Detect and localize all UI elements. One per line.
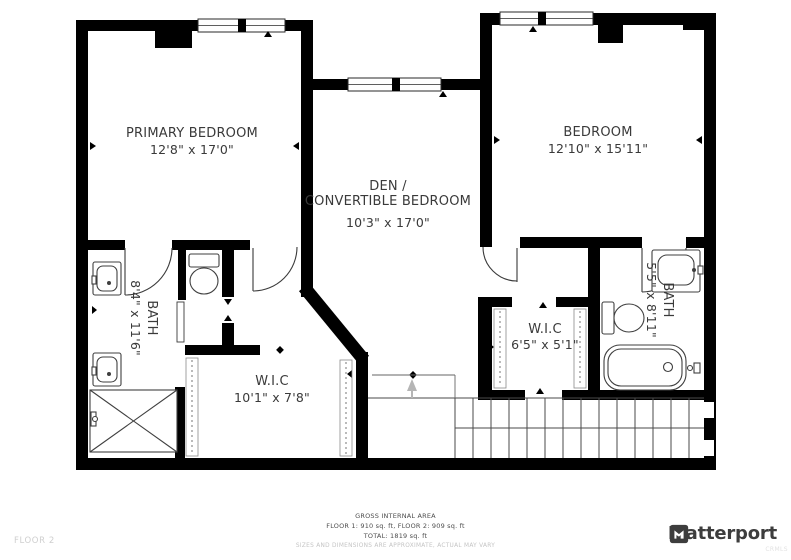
den-dims: 10'3" x 17'0" [346, 215, 430, 230]
den-label-line2: CONVERTIBLE BEDROOM [305, 194, 471, 209]
stair-direction-arrow [407, 379, 417, 398]
sink [92, 353, 121, 386]
matterport-logo: Matterport [668, 523, 777, 544]
watermark: CRMLS [765, 546, 788, 553]
bedroom-label: BEDROOM [563, 125, 632, 140]
bath-left-label: BATH [144, 300, 159, 335]
shower [90, 390, 177, 452]
windows [198, 12, 593, 91]
matterport-m-icon [668, 523, 690, 545]
bath-right-label: BATH [660, 282, 675, 317]
gross-area-title: GROSS INTERNAL AREA [0, 512, 791, 522]
sink [92, 262, 121, 295]
bathtub [604, 345, 700, 390]
door-primary-bedroom [253, 247, 297, 291]
bath-right-dims: 5'5" x 8'11" [644, 262, 659, 338]
window-bedroom [500, 12, 593, 25]
wic-left-label: W.I.C [255, 374, 289, 389]
wic-left-dims: 10'1" x 7'8" [234, 390, 310, 405]
pocket-door-toilet [177, 302, 184, 342]
window-den [348, 78, 441, 91]
closet-rails [186, 309, 586, 456]
floorplan-drawing: PRIMARY BEDROOM 12'8" x 17'0" BEDROOM 12… [0, 0, 791, 505]
bath-left-dims: 8'4" x 11'6" [128, 280, 143, 356]
primary-bedroom-label: PRIMARY BEDROOM [126, 126, 258, 141]
wic-right-dims: 6'5" x 5'1" [511, 337, 579, 352]
window-primary [198, 19, 285, 32]
floorplan-page: PRIMARY BEDROOM 12'8" x 17'0" BEDROOM 12… [0, 0, 791, 560]
bedroom-dims: 12'10" x 15'11" [548, 141, 648, 156]
primary-bedroom-dims: 12'8" x 17'0" [150, 142, 234, 157]
toilet [189, 254, 219, 294]
wic-right-label: W.I.C [528, 322, 562, 337]
den-label-line1: DEN / [369, 179, 407, 194]
floor-label: FLOOR 2 [14, 536, 55, 546]
toilet [602, 302, 644, 334]
door-bedroom [483, 247, 517, 282]
bath-left-label-group: BATH 8'4" x 11'6" [128, 280, 159, 356]
